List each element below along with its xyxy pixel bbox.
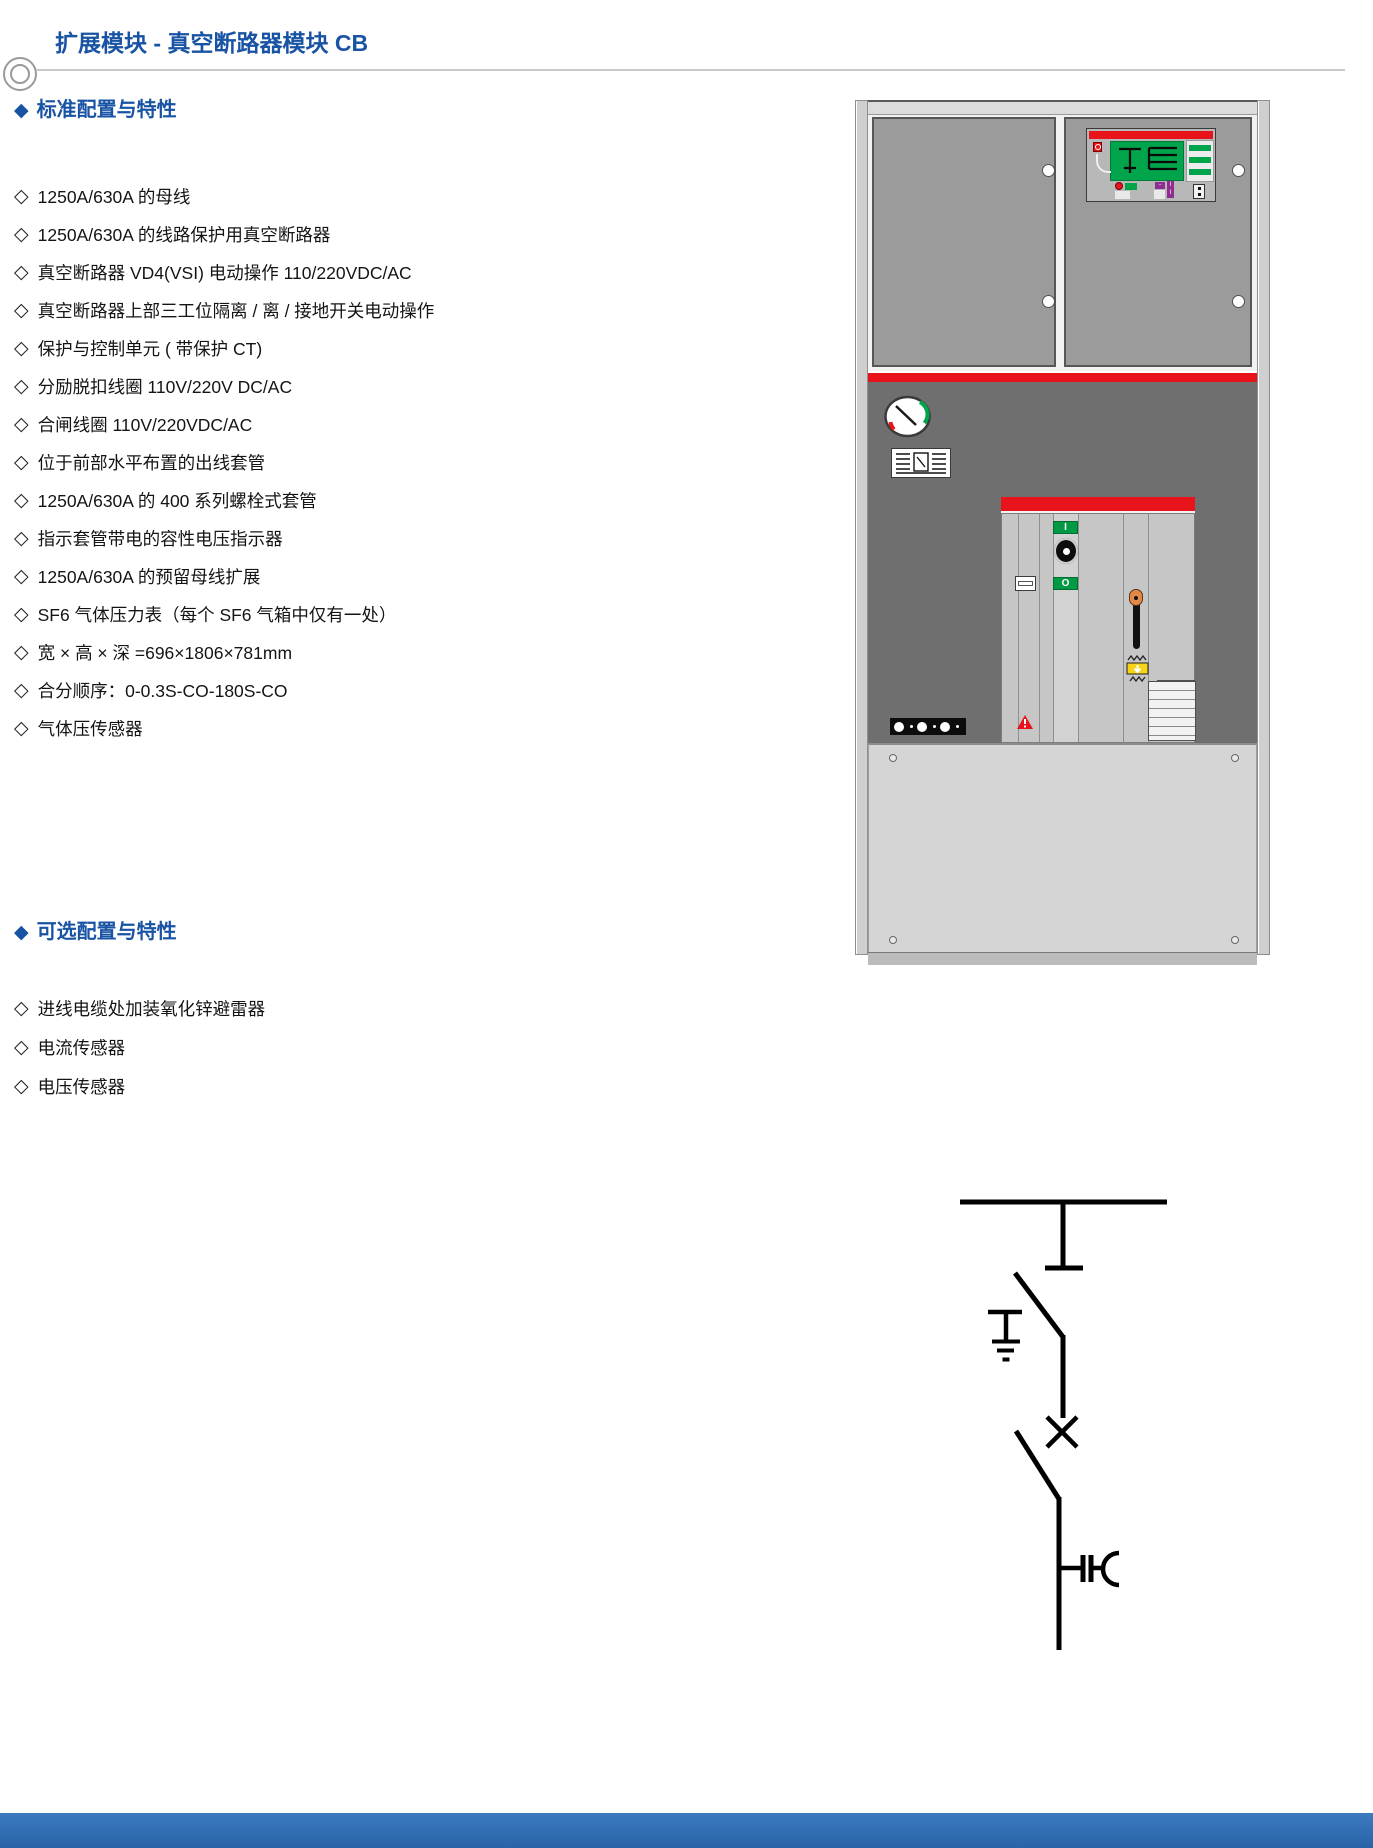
feature-item-text: 位于前部水平布置的出线套管 (38, 450, 266, 475)
door-bolt (1042, 295, 1055, 308)
diamond-bullet-icon: ◇ (14, 1077, 29, 1096)
diamond-bullet-icon: ◇ (14, 999, 29, 1018)
relay-wire-decoration (1096, 154, 1111, 173)
earth-switch (988, 1312, 1022, 1360)
feature-item: ◇ 位于前部水平布置的出线套管 (14, 443, 674, 481)
selector-knob (1054, 538, 1078, 564)
feature-item-text: 真空断路器 VD4(VSI) 电动操作 110/220VDC/AC (38, 260, 412, 285)
cabinet-red-band (868, 373, 1257, 382)
feature-item-text: 气体压传感器 (38, 716, 143, 741)
feature-item: ◇ 电压传感器 (14, 1067, 674, 1106)
feature-item: ◇ 保护与控制单元 ( 带保护 CT) (14, 329, 674, 367)
diamond-bullet-icon: ◇ (14, 377, 29, 396)
relay-red-button (1093, 142, 1102, 152)
diamond-bullet-icon: ◇ (14, 643, 29, 662)
operating-lever-knob (1129, 589, 1143, 606)
standard-section-heading: ◆标准配置与特性 (14, 96, 177, 124)
feature-item-text: 合分顺序：0-0.3S-CO-180S-CO (38, 678, 288, 703)
feature-item-text: 1250A/630A 的母线 (38, 184, 191, 209)
filled-diamond-icon: ◆ (14, 922, 29, 943)
feature-item-text: 1250A/630A 的线路保护用真空断路器 (38, 222, 331, 247)
green-bar (1189, 157, 1211, 163)
diamond-bullet-icon: ◇ (14, 453, 29, 472)
diamond-bullet-icon: ◇ (14, 719, 29, 738)
vent-panel (1148, 681, 1196, 741)
gas-tank-front-section: I O (868, 382, 1257, 743)
relay-mini-red-led (1115, 182, 1123, 190)
relay-purple-tile: – (1155, 182, 1165, 189)
feature-item: ◇ 真空断路器 VD4(VSI) 电动操作 110/220VDC/AC (14, 253, 674, 291)
feature-item: ◇ 真空断路器上部三工位隔离 / 离 / 接地开关电动操作 (14, 291, 674, 329)
diamond-bullet-icon: ◇ (14, 339, 29, 358)
header-rule (36, 69, 1345, 71)
filled-diamond-icon: ◆ (14, 100, 29, 121)
feature-item: ◇ 指示套管带电的容性电压指示器 (14, 519, 674, 557)
door-bolt-small (1231, 936, 1239, 944)
relay-purple-tile: II (1167, 181, 1174, 198)
diamond-bullet-icon: ◇ (14, 681, 29, 700)
feature-item-text: 真空断路器上部三工位隔离 / 离 / 接地开关电动操作 (38, 298, 435, 323)
relay-red-stripe (1089, 131, 1213, 139)
door-bolt (1232, 295, 1245, 308)
breaker-panel: I O (1001, 513, 1195, 743)
diamond-bullet-icon: ◇ (14, 301, 29, 320)
cabinet-left-side-panel (855, 100, 868, 955)
feature-item: ◇ 分励脱扣线圈 110V/220V DC/AC (14, 367, 674, 405)
relay-led-bargraph (1186, 140, 1214, 182)
relay-mini-green-tag (1125, 183, 1137, 190)
feature-item: ◇ 1250A/630A 的母线 (14, 177, 674, 215)
feature-item-text: 1250A/630A 的预留母线扩展 (38, 564, 261, 589)
feature-item: ◇ 合分顺序：0-0.3S-CO-180S-CO (14, 671, 674, 709)
feature-item-text: 指示套管带电的容性电压指示器 (38, 526, 283, 551)
feature-item: ◇ 电流传感器 (14, 1028, 674, 1067)
feature-item: ◇ 进线电缆处加装氧化锌避雷器 (14, 989, 674, 1028)
diamond-bullet-icon: ◇ (14, 415, 29, 434)
relay-white-tile (1115, 191, 1130, 199)
green-bar (1189, 145, 1211, 151)
feature-item: ◇ 1250A/630A 的 400 系列螺栓式套管 (14, 481, 674, 519)
header-ring-decoration (3, 57, 37, 91)
switchgear-cabinet-illustration: – II (855, 98, 1270, 965)
diamond-bullet-icon: ◇ (14, 567, 29, 586)
standard-heading-text: 标准配置与特性 (37, 99, 177, 121)
cabinet-top-bar (868, 100, 1257, 115)
upper-left-door (872, 117, 1056, 367)
cabinet-right-side-panel (1257, 100, 1270, 955)
feature-item-text: SF6 气体压力表（每个 SF6 气箱中仅有一处） (38, 602, 397, 627)
breaker-red-band (1001, 497, 1195, 513)
charging-handle-slot (1015, 576, 1036, 591)
feature-item: ◇ 宽 × 高 × 深 =696×1806×781mm (14, 633, 674, 671)
header-ring-inner (10, 64, 30, 84)
feature-item-text: 电流传感器 (38, 1035, 126, 1060)
diamond-bullet-icon: ◇ (14, 187, 29, 206)
feature-item-text: 保护与控制单元 ( 带保护 CT) (38, 336, 263, 361)
optional-heading-text: 可选配置与特性 (37, 921, 177, 943)
relay-mimic-display (1110, 141, 1184, 181)
page-title: 扩展模块 - 真空断路器模块 CB (55, 28, 368, 58)
optional-feature-list: ◇ 进线电缆处加装氧化锌避雷器 ◇ 电流传感器 ◇ 电压传感器 (14, 989, 674, 1106)
door-bolt-small (1231, 754, 1239, 762)
feature-item-text: 进线电缆处加装氧化锌避雷器 (38, 996, 266, 1021)
warning-triangle-icon (1016, 714, 1034, 730)
feature-item: ◇ 1250A/630A 的线路保护用真空断路器 (14, 215, 674, 253)
diamond-bullet-icon: ◇ (14, 1038, 29, 1057)
nameplate (891, 448, 951, 478)
feature-item-text: 宽 × 高 × 深 =696×1806×781mm (38, 640, 292, 665)
catalog-page: { "page": { "title": "扩展模块 - 真空断路器模块 CB"… (0, 0, 1373, 1848)
diamond-bullet-icon: ◇ (14, 263, 29, 282)
feature-item: ◇ 1250A/630A 的预留母线扩展 (14, 557, 674, 595)
door-bolt-small (889, 936, 897, 944)
relay-connector-box (1193, 184, 1205, 199)
footer-blue-bar (0, 1813, 1373, 1848)
diamond-bullet-icon: ◇ (14, 225, 29, 244)
lower-compartment-door (868, 743, 1257, 952)
three-position-switch-blade (1015, 1273, 1063, 1337)
feature-item: ◇ 合闸线圈 110V/220VDC/AC (14, 405, 674, 443)
door-bolt-small (889, 754, 897, 762)
vd4-breaker-module: I O (1001, 497, 1195, 743)
feature-item-text: 合闸线圈 110V/220VDC/AC (38, 412, 253, 437)
feature-item-text: 1250A/630A 的 400 系列螺栓式套管 (38, 488, 317, 513)
standard-feature-list: ◇ 1250A/630A 的母线 ◇ 1250A/630A 的线路保护用真空断路… (14, 177, 674, 747)
sf6-pressure-gauge (883, 395, 932, 438)
spring-indicator (1126, 655, 1149, 683)
feature-item: ◇ 气体压传感器 (14, 709, 674, 747)
single-line-diagram (940, 1180, 1190, 1670)
door-bolt (1042, 164, 1055, 177)
feature-item-text: 电压传感器 (38, 1074, 126, 1099)
optional-section-heading: ◆可选配置与特性 (14, 918, 177, 946)
diamond-bullet-icon: ◇ (14, 491, 29, 510)
circuit-breaker-x (1047, 1417, 1077, 1447)
mimic-diagram (1111, 142, 1183, 180)
door-bolt (1232, 164, 1245, 177)
green-bar (1189, 169, 1211, 175)
protection-control-unit: – II (1086, 128, 1216, 202)
relay-white-tile (1154, 190, 1165, 199)
capacitive-voltage-divider (1059, 1553, 1119, 1585)
feature-item-text: 分励脱扣线圈 110V/220V DC/AC (38, 374, 292, 399)
indicator-label-strip (890, 718, 966, 735)
close-button: I (1053, 521, 1078, 534)
diamond-bullet-icon: ◇ (14, 605, 29, 624)
open-button: O (1053, 577, 1078, 590)
diamond-bullet-icon: ◇ (14, 529, 29, 548)
cabinet-base (868, 952, 1257, 965)
feature-item: ◇ SF6 气体压力表（每个 SF6 气箱中仅有一处） (14, 595, 674, 633)
